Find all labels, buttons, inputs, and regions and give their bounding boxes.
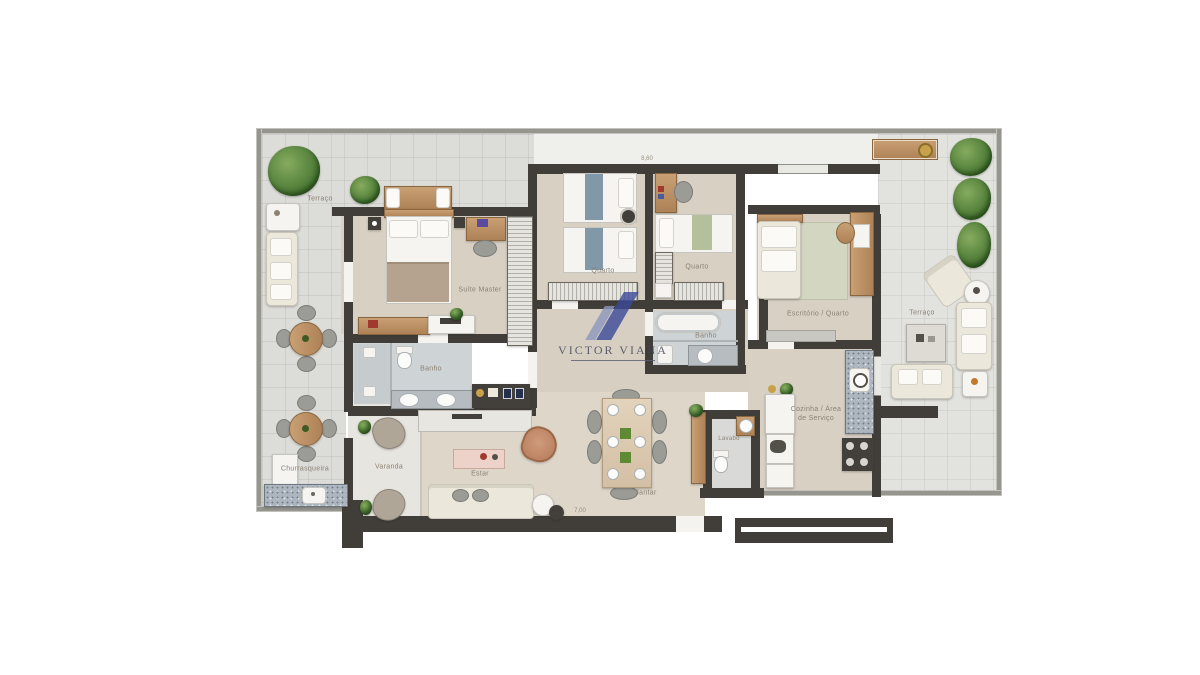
- sofa-cushion: [761, 250, 797, 272]
- laundry-counter: [845, 350, 874, 434]
- sofa-pillow: [898, 369, 918, 385]
- sofa-pillow: [270, 284, 292, 300]
- sofa-pillow: [472, 489, 489, 502]
- decor: [488, 388, 498, 397]
- office-console: [766, 330, 836, 342]
- bench-cushion: [386, 188, 400, 208]
- wall-top-right-piece: [828, 164, 880, 174]
- plate: [634, 468, 646, 480]
- wardrobe: [655, 252, 673, 284]
- table-centerpiece: [302, 335, 309, 342]
- nightstand: [454, 217, 465, 228]
- wine-rack: [515, 388, 524, 399]
- bench-cushion: [918, 143, 933, 158]
- burner: [860, 458, 868, 466]
- table-centerpiece: [620, 452, 631, 463]
- watermark-rule: [571, 360, 655, 361]
- dining-console: [691, 412, 706, 484]
- dining-chair: [652, 440, 667, 464]
- burner: [846, 442, 854, 450]
- chair: [297, 305, 316, 321]
- toilet-bowl: [714, 456, 728, 473]
- dimension-top: 8,60: [641, 156, 653, 162]
- decor: [480, 453, 487, 460]
- bedside-stool: [620, 208, 637, 225]
- wall-bedroom2-right: [736, 164, 745, 369]
- room-label-bath2: Banho: [695, 331, 717, 340]
- bed-pillow: [420, 220, 449, 238]
- chair: [297, 356, 316, 372]
- suite-door: [528, 352, 537, 388]
- bed-pillow: [618, 178, 634, 208]
- dining-chair: [610, 486, 638, 500]
- decor: [274, 210, 280, 216]
- wall-left-upper: [344, 207, 353, 262]
- floor-lamp: [549, 505, 564, 520]
- vanity-sink: [399, 393, 419, 407]
- watermark: VICTOR VIANA: [548, 292, 678, 376]
- decor: [658, 186, 664, 192]
- sofa-pillow: [961, 334, 987, 354]
- sofa-pillow: [961, 308, 987, 328]
- sofa-pillow: [922, 369, 942, 385]
- floor-top-band: [534, 134, 878, 164]
- plate: [607, 404, 619, 416]
- bed-blanket: [585, 228, 603, 270]
- sofa-pillow: [270, 238, 292, 256]
- plate: [634, 436, 646, 448]
- lamp: [372, 221, 377, 226]
- suite-terrace-door: [344, 262, 353, 302]
- bed-pillow: [389, 220, 418, 238]
- bath-suite-door: [418, 334, 448, 343]
- laptop: [477, 219, 488, 227]
- wall-left-mid: [344, 302, 353, 412]
- plate: [634, 404, 646, 416]
- burner: [860, 442, 868, 450]
- vanity-sink: [436, 393, 456, 407]
- sofa-cushion: [761, 226, 797, 248]
- tv: [452, 414, 482, 419]
- perimeter-wall-top: [256, 128, 1002, 134]
- top-window: [778, 164, 828, 174]
- vanity-sink: [697, 348, 713, 364]
- shower-fixture: [363, 386, 376, 397]
- decor: [476, 389, 484, 397]
- chair: [321, 419, 337, 438]
- decor: [971, 378, 978, 385]
- sink-drain: [311, 492, 315, 496]
- table-centerpiece: [620, 428, 631, 439]
- room-label-dining: Jantar: [635, 488, 656, 497]
- terrace-side-table: [266, 203, 300, 231]
- room-label-suite: Suíte Master: [458, 285, 501, 294]
- bed-pillow: [618, 231, 634, 259]
- perimeter-wall-right: [996, 128, 1002, 496]
- room-label-powder-room: Lavabo: [718, 436, 740, 444]
- dimension-bottom: 7,00: [574, 508, 586, 514]
- table-centerpiece: [302, 425, 309, 432]
- decor: [928, 336, 935, 342]
- room-label-terrace-right: Terraço: [909, 308, 934, 317]
- decor: [658, 194, 664, 199]
- chair: [297, 446, 316, 462]
- wall-block-stripe: [741, 527, 887, 532]
- chair: [321, 329, 337, 348]
- plate: [607, 468, 619, 480]
- wine-rack: [503, 388, 512, 399]
- dining-chair: [652, 410, 667, 434]
- watermark-brand: VICTOR VIANA: [548, 343, 678, 358]
- room-label-living: Estar: [471, 469, 489, 478]
- washer-drum: [853, 373, 868, 388]
- bed-pillow: [659, 218, 674, 248]
- shower-fixture: [363, 347, 376, 358]
- dining-chair: [587, 410, 602, 434]
- decor: [973, 287, 980, 294]
- room-label-bedroom1: Quarto: [591, 266, 614, 275]
- perimeter-wall-left: [256, 128, 262, 512]
- desk-chair: [674, 181, 693, 203]
- room-label-balcony: Varanda: [375, 462, 403, 471]
- bed-blanket: [387, 262, 449, 302]
- floor-plan: Terraço Churrasqueira Varanda Estar Jant…: [0, 0, 1200, 675]
- wardrobe: [674, 282, 724, 301]
- bed-blanket: [692, 215, 712, 250]
- decor: [768, 385, 776, 393]
- bench-cushion: [436, 188, 450, 208]
- wall-kitchen-bottom: [700, 488, 764, 498]
- dining-chair: [587, 440, 602, 464]
- decor: [492, 454, 498, 460]
- bed-blanket: [585, 174, 603, 220]
- wall-terrace-right-seg: [870, 406, 938, 418]
- kitchen-sink: [770, 440, 786, 453]
- suite-wardrobe: [507, 216, 533, 346]
- wall-bedroom-divider: [645, 170, 653, 303]
- room-label-bedroom2: Quarto: [685, 262, 708, 271]
- room-label-terrace-left: Terraço: [307, 194, 332, 203]
- room-label-bath-suite: Banho: [420, 364, 442, 373]
- sofa-pillow: [270, 262, 292, 280]
- bath2-vanity: [688, 345, 738, 366]
- plate: [607, 436, 619, 448]
- laptop: [853, 224, 870, 248]
- room-label-office: Escritório / Quarto: [787, 309, 849, 318]
- room-label-kitchen: Cozinha / Área de Serviço: [791, 405, 842, 423]
- sofa-pillow: [452, 489, 469, 502]
- desk-chair: [473, 240, 497, 257]
- room-label-barbecue: Churrasqueira: [281, 464, 329, 473]
- basin: [739, 419, 753, 433]
- entry-door: [676, 516, 704, 532]
- decor: [368, 320, 378, 328]
- chair: [297, 395, 316, 411]
- perimeter-wall-bottom-right: [760, 490, 1002, 496]
- watermark-logo: [593, 292, 633, 340]
- toilet-bowl: [397, 352, 412, 369]
- burner: [846, 458, 854, 466]
- kitchen-cabinet: [766, 464, 794, 488]
- desk-chair: [836, 222, 855, 244]
- decor: [916, 334, 924, 342]
- terrace-coffee-table: [906, 324, 946, 362]
